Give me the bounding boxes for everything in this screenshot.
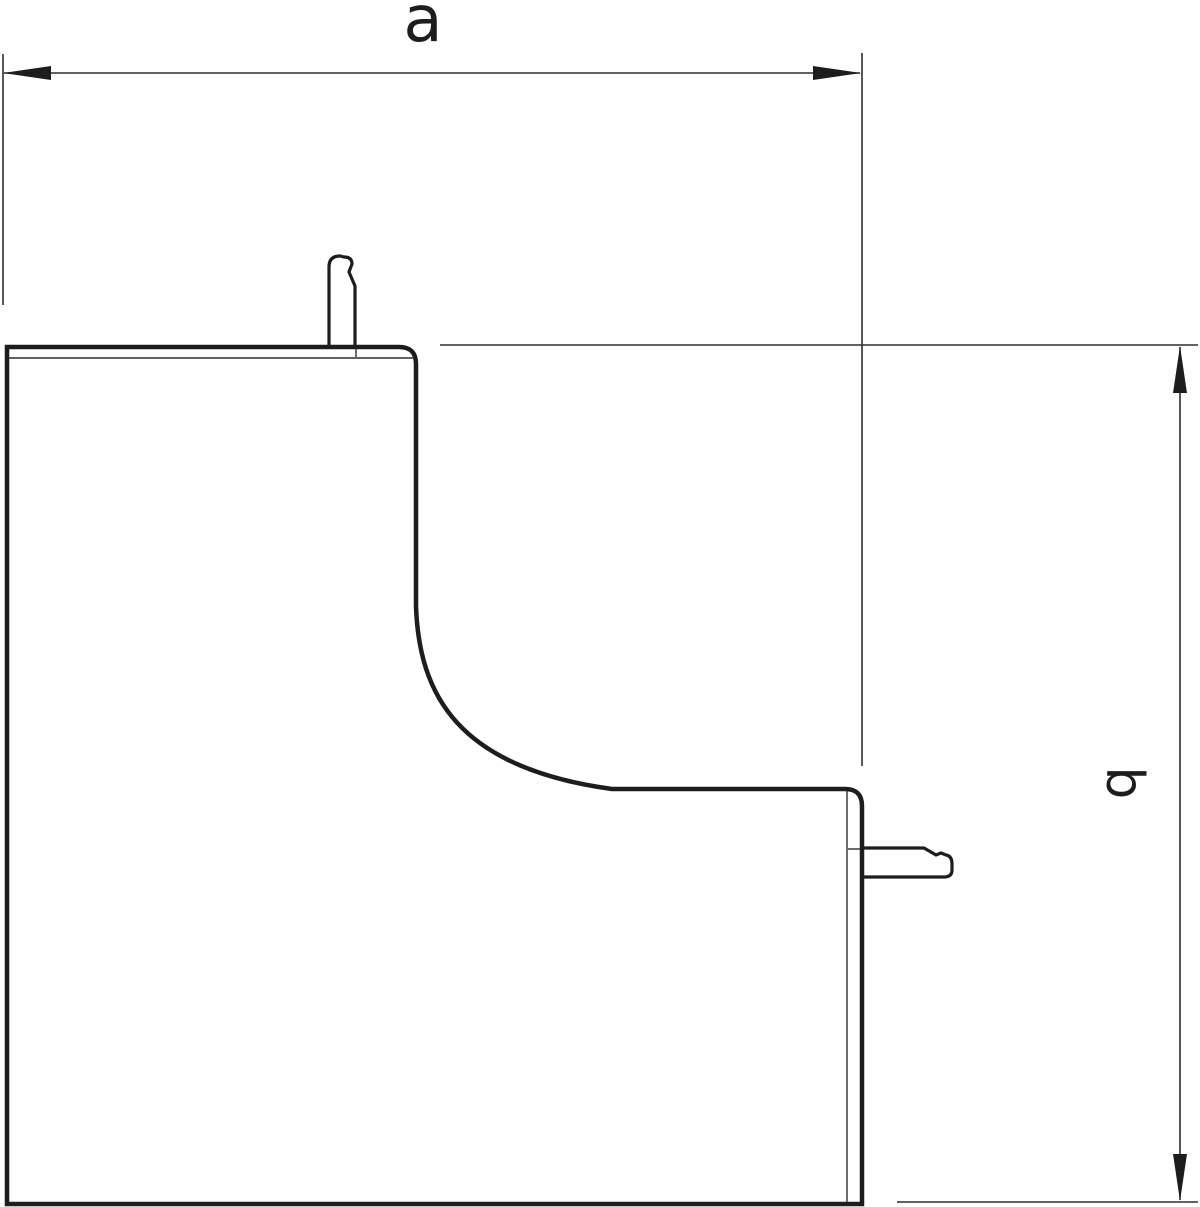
side-clip-tab	[862, 848, 952, 877]
part-outline	[7, 347, 862, 1204]
dimension-a-arrowhead-left	[3, 66, 51, 80]
dimension-label-b: b	[1098, 766, 1150, 799]
dimension-drawing	[0, 0, 1200, 1207]
dimension-b-arrowhead-down	[1173, 1154, 1187, 1201]
dimension-b-arrowhead-up	[1173, 346, 1187, 393]
technical-drawing-canvas: a b	[0, 0, 1200, 1207]
dimension-a-arrowhead-right	[813, 66, 861, 80]
top-clip-tab	[329, 256, 355, 346]
dimension-label-a: a	[393, 0, 453, 52]
